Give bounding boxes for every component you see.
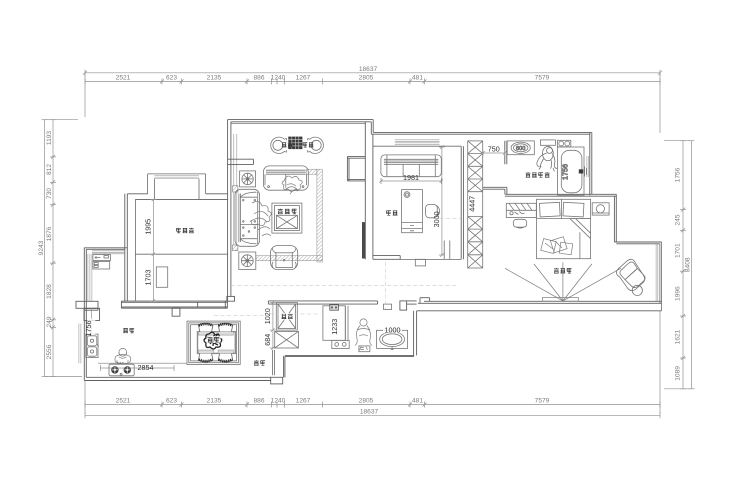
svg-text:18637: 18637 [360, 409, 379, 416]
svg-text:2521: 2521 [116, 398, 131, 405]
svg-text:2521: 2521 [116, 75, 131, 82]
svg-text:1621: 1621 [675, 329, 682, 344]
svg-text:2556: 2556 [46, 344, 53, 359]
svg-text:245: 245 [675, 214, 682, 225]
svg-text:684: 684 [263, 334, 272, 346]
svg-text:1703: 1703 [144, 270, 153, 286]
svg-text:1981: 1981 [403, 173, 419, 182]
svg-text:1020: 1020 [263, 308, 272, 324]
svg-text:1828: 1828 [46, 284, 53, 299]
svg-text:18637: 18637 [359, 66, 378, 73]
svg-text:3000: 3000 [432, 211, 441, 227]
svg-text:800: 800 [516, 146, 525, 152]
svg-text:2805: 2805 [359, 75, 374, 82]
svg-text:1193: 1193 [46, 131, 53, 146]
svg-text:1701: 1701 [675, 243, 682, 258]
svg-text:249: 249 [46, 316, 53, 327]
svg-text:1240: 1240 [271, 75, 286, 82]
svg-text:1000: 1000 [385, 325, 401, 334]
svg-text:886: 886 [253, 75, 264, 82]
svg-text:1995: 1995 [144, 219, 153, 235]
svg-text:9243: 9243 [38, 240, 45, 255]
svg-text:1756: 1756 [84, 321, 93, 337]
svg-text:2135: 2135 [207, 398, 222, 405]
svg-text:1267: 1267 [296, 398, 311, 405]
svg-text:7579: 7579 [535, 75, 550, 82]
svg-text:1089: 1089 [675, 366, 682, 381]
svg-text:2854: 2854 [138, 363, 154, 372]
svg-text:623: 623 [166, 75, 177, 82]
svg-text:730: 730 [46, 188, 53, 199]
svg-text:2135: 2135 [207, 75, 222, 82]
svg-text:750: 750 [488, 145, 500, 154]
svg-text:886: 886 [253, 398, 264, 405]
svg-text:1756: 1756 [675, 167, 682, 182]
svg-text:8408: 8408 [685, 257, 692, 272]
svg-text:4447: 4447 [468, 196, 477, 212]
svg-text:1267: 1267 [296, 75, 311, 82]
svg-text:1996: 1996 [675, 286, 682, 301]
svg-text:1756: 1756 [560, 164, 569, 180]
svg-text:481: 481 [412, 398, 423, 405]
svg-text:1233: 1233 [330, 319, 339, 335]
svg-text:812: 812 [46, 164, 53, 175]
svg-text:481: 481 [412, 75, 423, 82]
svg-text:623: 623 [166, 398, 177, 405]
svg-text:1876: 1876 [46, 226, 53, 241]
svg-text:7579: 7579 [535, 398, 550, 405]
svg-text:2805: 2805 [359, 398, 374, 405]
svg-text:1240: 1240 [271, 398, 286, 405]
